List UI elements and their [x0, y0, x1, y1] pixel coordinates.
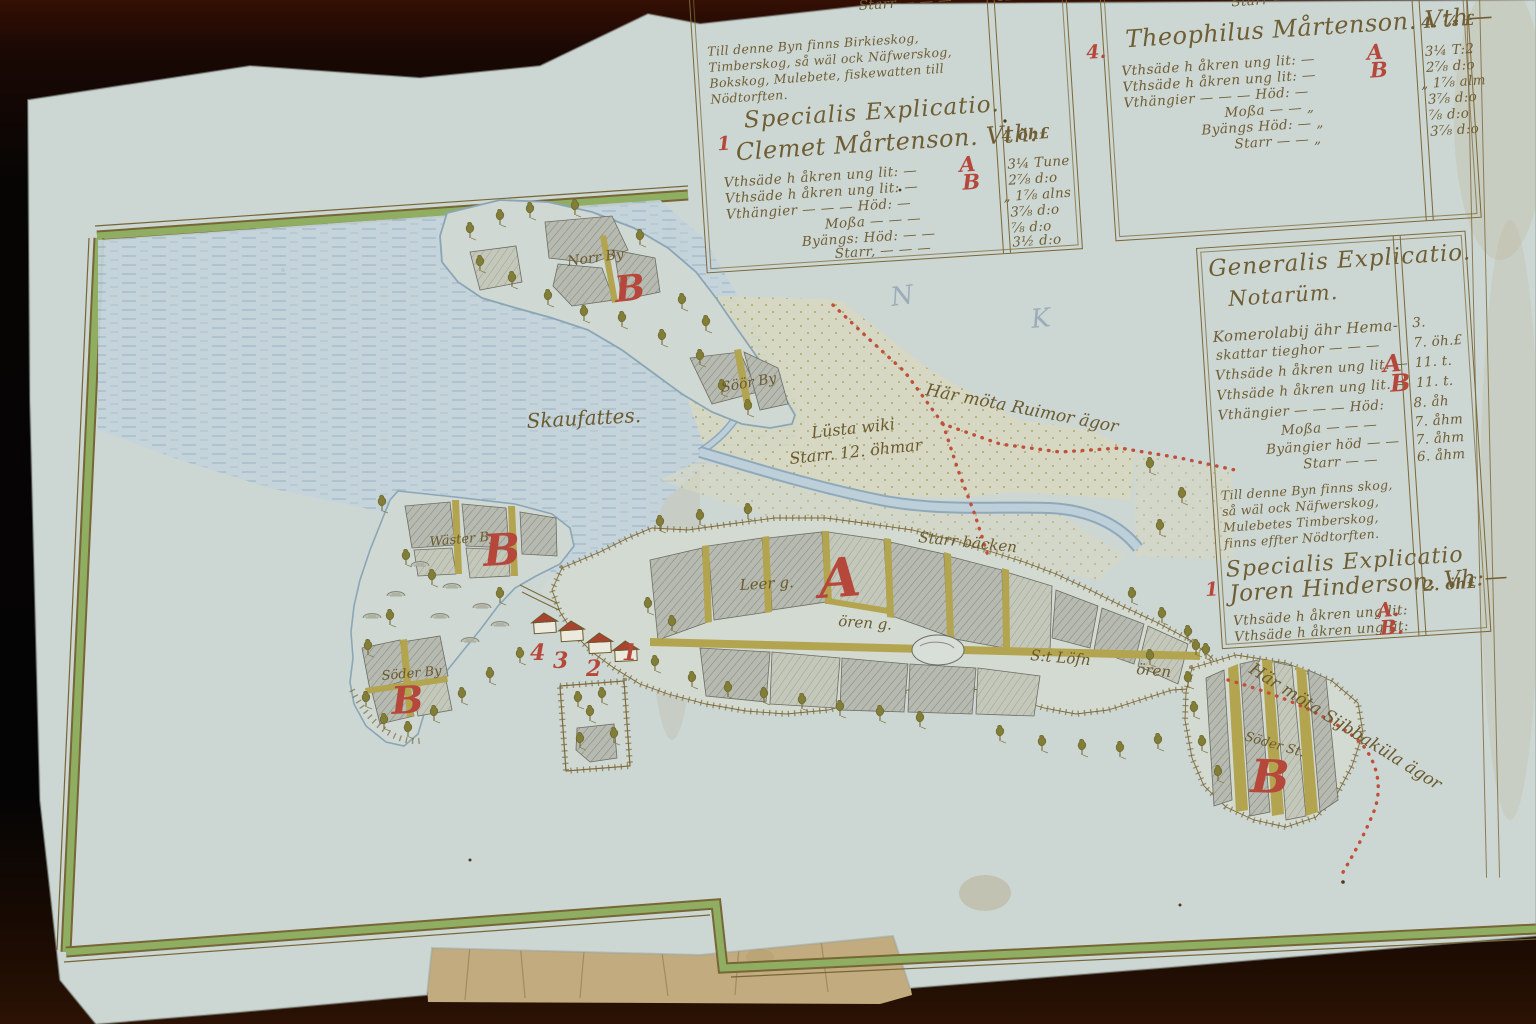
owner-value: 2. öh£ — [1423, 574, 1478, 595]
table-row-value: 8. åh — [1413, 393, 1449, 411]
house-number-4: 4 — [530, 640, 545, 666]
margin-marker: 4. — [1086, 41, 1107, 64]
panel-theophilus: Starr — — — 3⅞ d. 4. Theophilus Mårtenso… — [1096, 0, 1482, 241]
panel-subheading: Notarüm. — [1228, 280, 1339, 311]
panel-heading: Generalis Explicatio. — [1208, 239, 1472, 282]
letter-b-island: B — [612, 266, 648, 311]
village-note: Till denne Byn finns skog, så wäl ock Nä… — [1221, 476, 1407, 552]
lit-letter-b: B — [1369, 56, 1388, 82]
lit-letter-b: B — [962, 169, 981, 195]
letter-b-peninsula-south: B — [389, 676, 424, 723]
lit-letter-b: B — [1389, 367, 1411, 397]
house-number-2: 2 — [585, 656, 601, 682]
table-row-label: Starr — — — — [858, 0, 952, 14]
table-row-value: 11. t. — [1414, 353, 1452, 371]
table-row-value: 3⅞ d:o — [1010, 202, 1060, 221]
letter-b-southeast: B — [1248, 749, 1291, 804]
table-row-value: 7. öh.£ — [1413, 332, 1463, 351]
field-label-oren-mid: ören g. — [838, 612, 893, 634]
photographed-map-page: Skaufattes. Här möta Ruimor ägor Lüsta w… — [0, 0, 1536, 1024]
panel-specialis-clemet: Byängs Höd: — — — 1½. d. Starr — — — 12.… — [688, 0, 1083, 273]
lit-letter-b: B. — [1379, 614, 1404, 639]
table-row-label: Starr — — — [1303, 452, 1379, 473]
table-row-value: 11. t. — [1416, 373, 1454, 391]
field-label-leer: Leer g. — [738, 573, 794, 594]
table-row-value: 6. åhm — [1416, 446, 1465, 465]
owner-value: 4 öh£ — [1001, 124, 1051, 145]
table-row-label: Starr — — — — [1231, 0, 1325, 10]
house-number-1: 1 — [622, 640, 637, 666]
panel-generalis: Generalis Explicatio. Notarüm. Komerolab… — [1196, 231, 1491, 650]
margin-marker: 1 — [717, 133, 732, 156]
table-row-value: 7. åhm — [1415, 429, 1464, 448]
field-label-oren-east: ören — [1136, 660, 1172, 681]
margin-marker: 1 — [1204, 578, 1219, 601]
pen-enclosure — [560, 681, 630, 771]
letter-b-peninsula-north: B — [480, 524, 522, 577]
table-row-value: 7. åhm — [1414, 411, 1463, 430]
table-row-value: 12. åh. — [996, 0, 1046, 5]
house-number-3: 3 — [553, 648, 568, 674]
table-row-value: 3½ d:o — [1012, 231, 1062, 250]
table-row-value: 3. — [1412, 314, 1426, 331]
